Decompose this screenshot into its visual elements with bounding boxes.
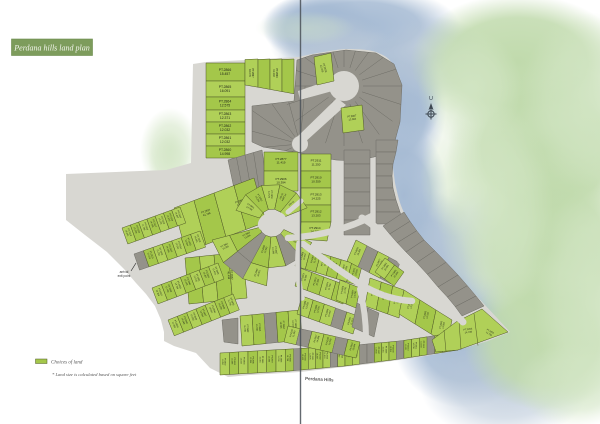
svg-text:PT.286911.102: PT.286911.102 — [272, 68, 278, 78]
svg-text:PT.287711.419: PT.287711.419 — [275, 157, 286, 165]
svg-text:* Land size is calculated base: * Land size is calculated based on squar… — [52, 372, 137, 377]
svg-text:PT.286716.076: PT.286716.076 — [248, 68, 254, 78]
svg-text:PT.286212.032: PT.286212.032 — [219, 124, 232, 132]
svg-text:PT.286014.998: PT.286014.998 — [219, 148, 232, 156]
svg-text:exit point: exit point — [118, 274, 131, 278]
svg-text:PT.286112.032: PT.286112.032 — [219, 136, 232, 144]
svg-text:PT.286312.371: PT.286312.371 — [219, 112, 232, 120]
svg-text:PT.291314.225: PT.291314.225 — [310, 193, 321, 201]
svg-text:PT.291010.359: PT.291010.359 — [310, 176, 321, 184]
svg-text:Perdana hills land plan: Perdana hills land plan — [13, 44, 89, 53]
svg-text:PT.291213.203: PT.291213.203 — [310, 210, 321, 218]
svg-text:U: U — [429, 96, 433, 102]
svg-text:Choices of land: Choices of land — [51, 361, 83, 366]
svg-text:PT.286615.457: PT.286615.457 — [219, 68, 232, 76]
svg-text:PT.283240.456: PT.283240.456 — [226, 270, 234, 281]
svg-text:PT.286516.091: PT.286516.091 — [219, 85, 232, 93]
svg-text:PT.291111.250: PT.291111.250 — [311, 159, 322, 167]
svg-text:PT.290610.394: PT.290610.394 — [275, 177, 286, 185]
svg-text:PT.286412.575: PT.286412.575 — [219, 100, 232, 108]
